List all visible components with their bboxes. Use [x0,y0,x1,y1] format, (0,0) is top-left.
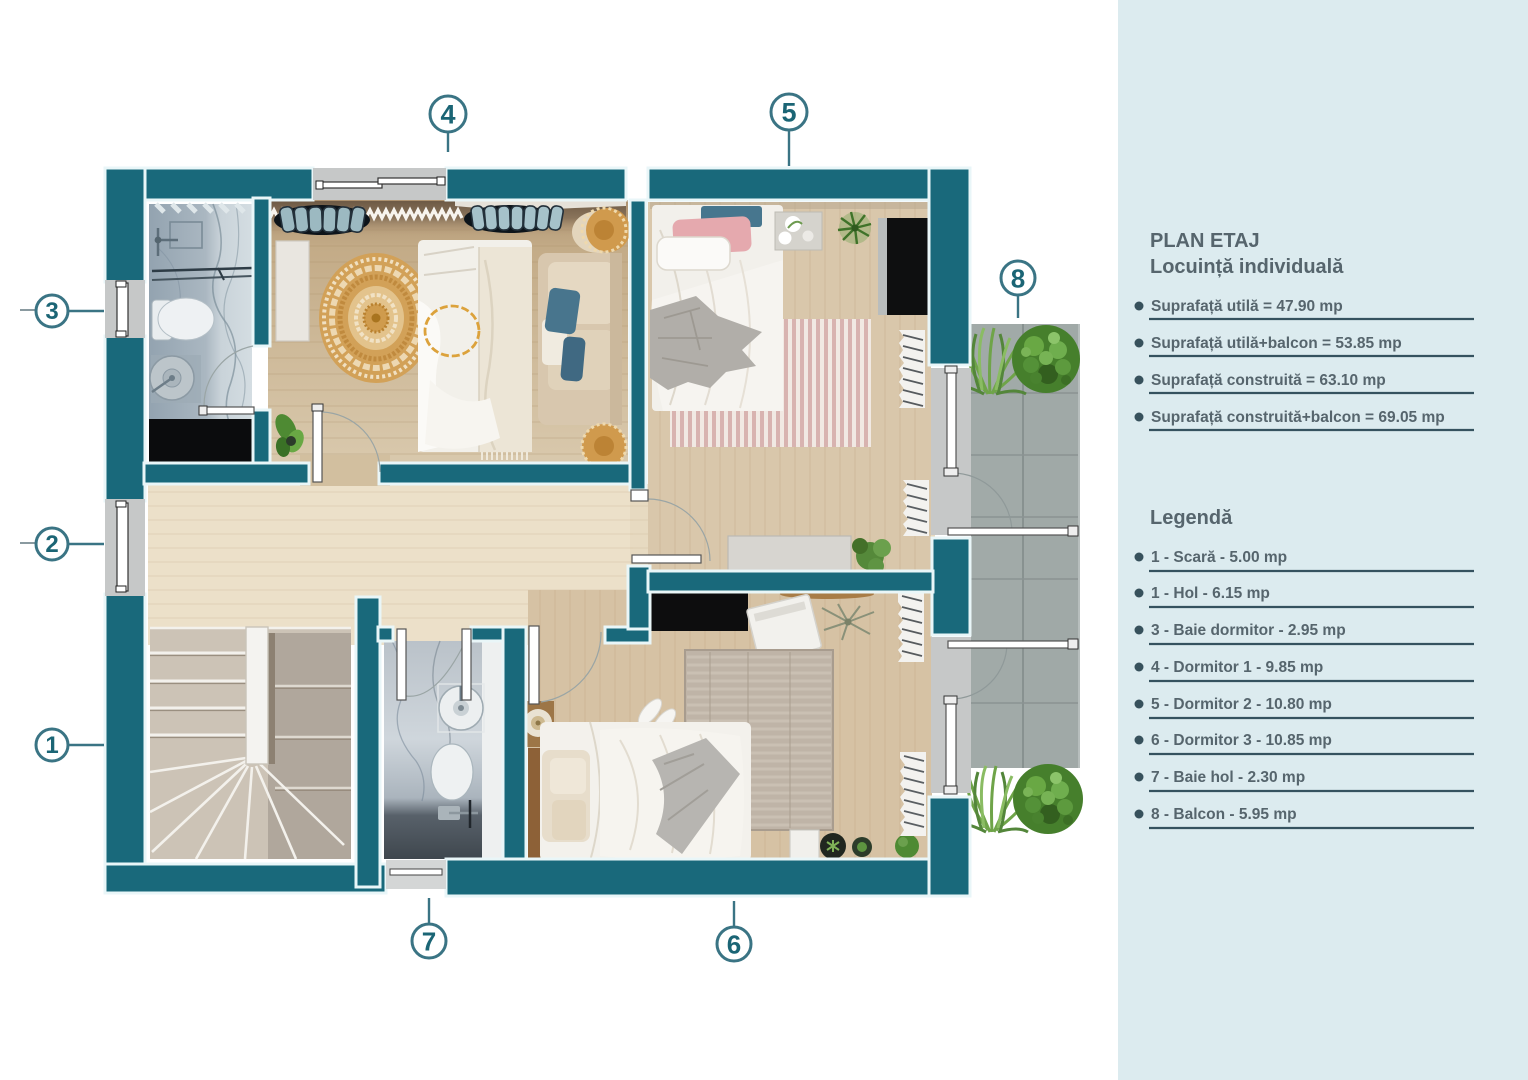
svg-text:4: 4 [440,100,455,130]
svg-text:Locuință individuală: Locuință individuală [1150,256,1344,278]
svg-text:1 - Hol - 6.15 mp: 1 - Hol - 6.15 mp [1151,585,1270,602]
svg-text:7: 7 [422,927,436,957]
svg-text:5: 5 [781,98,796,128]
svg-text:6 - Dormitor 3 - 10.85 mp: 6 - Dormitor 3 - 10.85 mp [1151,732,1332,749]
svg-text:3: 3 [45,298,58,325]
svg-text:1 - Scară - 5.00 mp: 1 - Scară - 5.00 mp [1151,549,1287,566]
svg-text:2: 2 [45,531,58,558]
svg-text:Legendă: Legendă [1150,507,1233,529]
svg-text:PLAN ETAJ: PLAN ETAJ [1150,230,1260,252]
svg-text:Suprafață construită = 63.10 m: Suprafață construită = 63.10 mp [1151,372,1386,389]
svg-text:7 - Baie hol - 2.30 mp: 7 - Baie hol - 2.30 mp [1151,769,1305,786]
svg-text:Suprafață construită+balcon =: Suprafață construită+balcon = 69.05 mp [1151,409,1445,426]
svg-text:5 - Dormitor 2 - 10.80 mp: 5 - Dormitor 2 - 10.80 mp [1151,696,1332,713]
svg-text:Suprafață utilă+balcon = 53.85: Suprafață utilă+balcon = 53.85 mp [1151,335,1402,352]
svg-text:1: 1 [45,732,58,759]
svg-text:8 - Balcon - 5.95 mp: 8 - Balcon - 5.95 mp [1151,806,1297,823]
svg-text:Suprafață utilă = 47.90 mp: Suprafață utilă = 47.90 mp [1151,298,1343,315]
svg-text:4 - Dormitor 1 - 9.85 mp: 4 - Dormitor 1 - 9.85 mp [1151,659,1323,676]
svg-text:6: 6 [727,930,741,960]
svg-text:3 - Baie dormitor - 2.95 mp: 3 - Baie dormitor - 2.95 mp [1151,622,1346,639]
svg-text:8: 8 [1011,264,1025,294]
